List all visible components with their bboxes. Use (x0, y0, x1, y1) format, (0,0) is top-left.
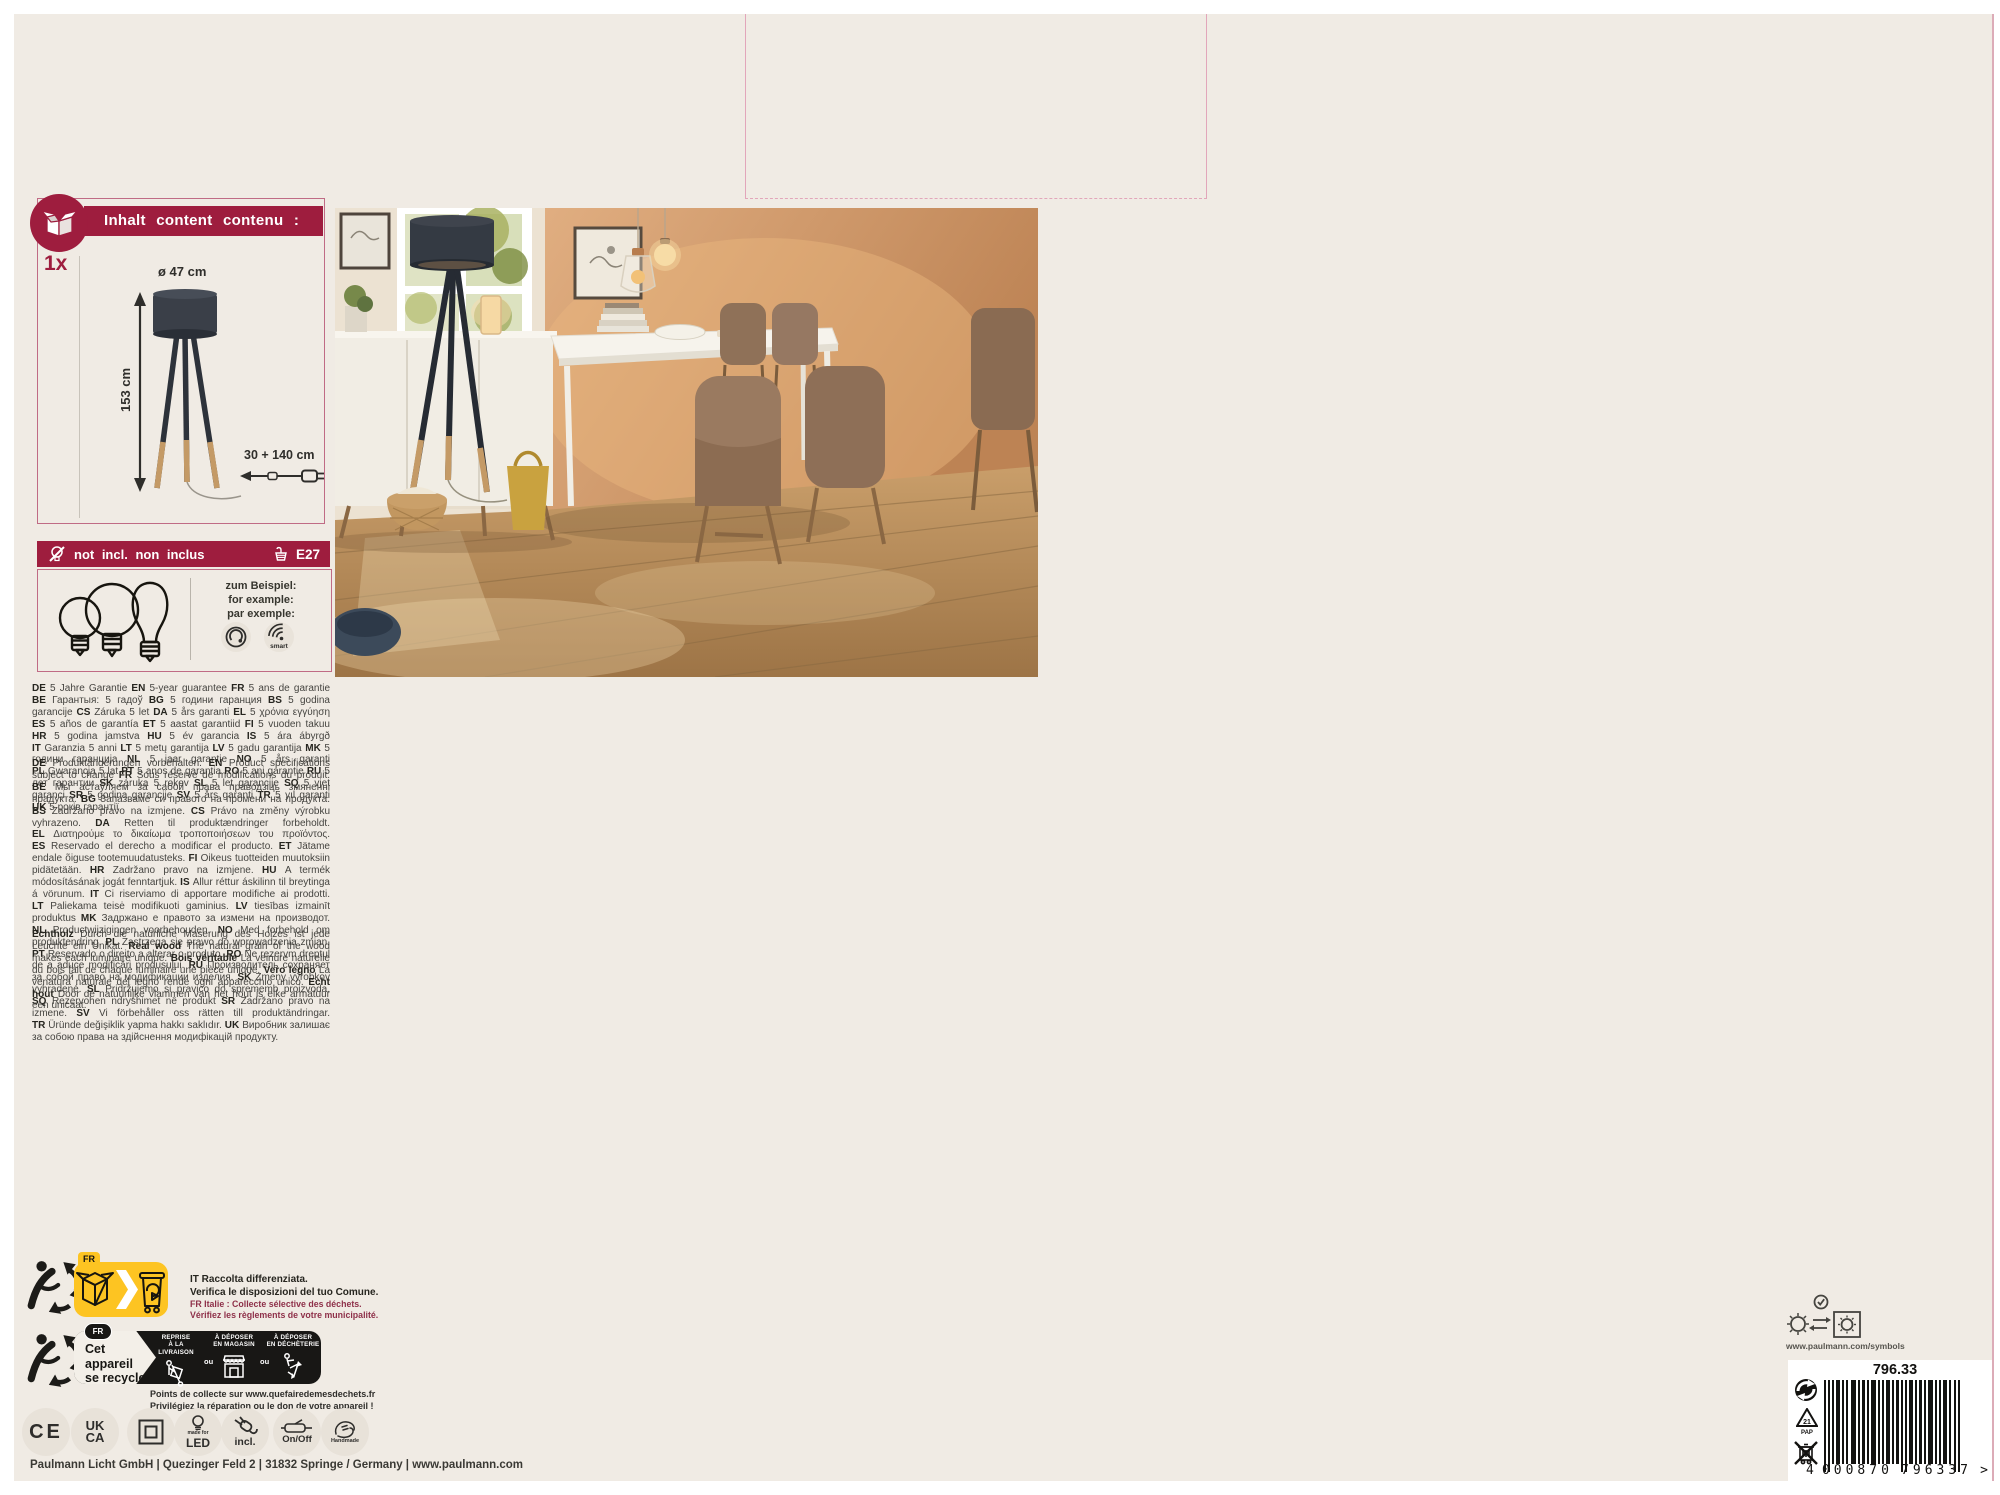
store-dropoff-icon (221, 1352, 247, 1380)
device-recycle-box: Cet appareil se recycle REPRISE À LA LIV… (74, 1331, 321, 1384)
cable-plug-icon (240, 467, 328, 485)
handmade-hands-icon (333, 1420, 357, 1438)
made-for-led-badge: made for LED (174, 1408, 222, 1456)
contents-divider (79, 256, 80, 518)
item-number: 796.33 (1826, 1362, 1964, 1378)
example-en: for example: (196, 593, 326, 607)
not-included-label: not incl. non inclus (74, 547, 204, 562)
col-magasin: À DÉPOSER EN MAGASIN (208, 1334, 260, 1380)
ean-digits: 4 000870 796337 > (1806, 1463, 1988, 1478)
recycling-center-icon (280, 1352, 306, 1380)
svg-text:21: 21 (1803, 1419, 1811, 1426)
room-scene (335, 208, 1038, 677)
contents-header: Inhalt content contenu : (84, 206, 323, 236)
die-cut-edge-line (1992, 14, 1994, 1481)
open-box-icon (41, 206, 77, 240)
symbols-url: www.paulmann.com/symbols (1786, 1341, 1905, 1351)
note-fr-2: Vérifiez les règlements de votre municip… (190, 1310, 380, 1321)
fr-oval-badge: FR (84, 1323, 112, 1340)
product-photo (335, 208, 1038, 677)
not-included-bar: not incl. non inclus E27 (37, 541, 330, 567)
on-off-badge: On/Off (273, 1408, 321, 1456)
note-fr-1: FR Italie : Collecte sélective des déche… (190, 1299, 380, 1310)
example-de: zum Beispiel: (196, 579, 326, 593)
note-it-1: IT Raccolta differenziata. (190, 1274, 380, 1287)
smart-wifi-icon: smart (266, 623, 292, 651)
note-it-2: Verifica le disposizioni del tuo Comune. (190, 1287, 380, 1300)
smart-label: smart (270, 643, 289, 650)
light-bulbs-icon (54, 576, 176, 666)
height-label: 153 cm (118, 368, 133, 412)
smart-badge: smart (264, 622, 294, 652)
e27-socket-icon (272, 545, 290, 563)
led-bulb-icon (189, 1415, 207, 1430)
plug-icon (232, 1416, 258, 1436)
ukca-mark: UK CA (71, 1408, 119, 1456)
device-recycle-title-2: se recycle (85, 1371, 156, 1386)
dimmer-badge (221, 622, 251, 652)
col-dechetterie: À DÉPOSER EN DÉCHÈTERIE (266, 1334, 320, 1380)
bulb-box-divider (190, 578, 191, 660)
ce-mark: CE (22, 1408, 70, 1456)
col-reprise: REPRISE À LA LIVRAISON (150, 1334, 202, 1387)
plug-included-badge: incl. (221, 1408, 269, 1456)
recycling-notes: IT Raccolta differenziata. Verifica le d… (190, 1274, 380, 1320)
cardboard-to-bin-icon (74, 1262, 168, 1317)
ean-barcode (1824, 1380, 1964, 1472)
packaging-sorting-box (74, 1262, 168, 1317)
cable-length-label: 30 + 140 cm (244, 448, 315, 462)
delivery-pickup-icon (163, 1359, 189, 1387)
inline-switch-icon (281, 1419, 313, 1434)
manufacturer-footer: Paulmann Licht GmbH | Quezinger Feld 2 |… (30, 1459, 523, 1471)
example-heading: zum Beispiel: for example: par exemple: (196, 579, 326, 621)
barcode-box: 796.33 (1788, 1360, 2000, 1481)
real-wood-paragraph: Echtholz Durch die natürliche Maserung d… (32, 929, 330, 1012)
quantity-label: 1x (44, 252, 67, 276)
dimmer-icon (224, 625, 248, 649)
contents-circle (30, 194, 88, 252)
socket-type-label: E27 (296, 547, 320, 562)
paulmann-symbols-icons (1784, 1292, 1876, 1344)
diameter-label: ø 47 cm (158, 264, 206, 279)
svg-text:PAP: PAP (1801, 1430, 1813, 1436)
packaging-panel: Inhalt content contenu : 1x ø 47 (0, 0, 2000, 1495)
device-recycle-title-1: Cet appareil (85, 1342, 156, 1371)
device-recycle-title-area: Cet appareil se recycle (74, 1331, 156, 1384)
handmade-badge: Handmade (321, 1408, 369, 1456)
contents-header-label: Inhalt content contenu : (104, 212, 299, 229)
collect-line-1: Points de collecte sur www.quefairedemes… (150, 1388, 375, 1400)
die-cut-flap-outline (745, 14, 1207, 199)
bulb-slash-icon (47, 544, 67, 564)
green-dot-icon (1794, 1378, 1818, 1402)
class-ii-icon (127, 1408, 175, 1456)
example-fr: par exemple: (196, 607, 326, 621)
pap-21-recycling-icon: 21 PAP (1796, 1408, 1818, 1436)
